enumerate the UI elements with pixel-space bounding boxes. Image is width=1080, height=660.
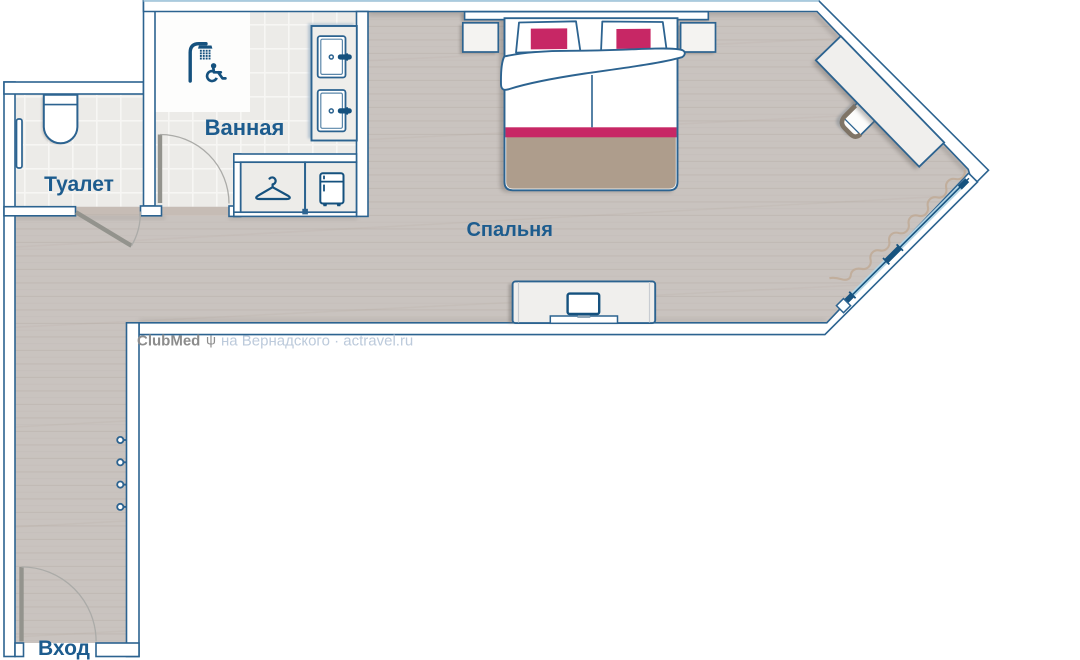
svg-text:Вход: Вход — [38, 637, 90, 660]
svg-text:Спальня: Спальня — [466, 219, 552, 241]
svg-text:ψ: ψ — [206, 332, 216, 348]
svg-text:Ванная: Ванная — [205, 115, 285, 140]
svg-text:Туалет: Туалет — [44, 173, 114, 196]
svg-text:на Вернадского · actravel.ru: на Вернадского · actravel.ru — [221, 333, 413, 350]
svg-text:ClubMed: ClubMed — [137, 333, 200, 350]
